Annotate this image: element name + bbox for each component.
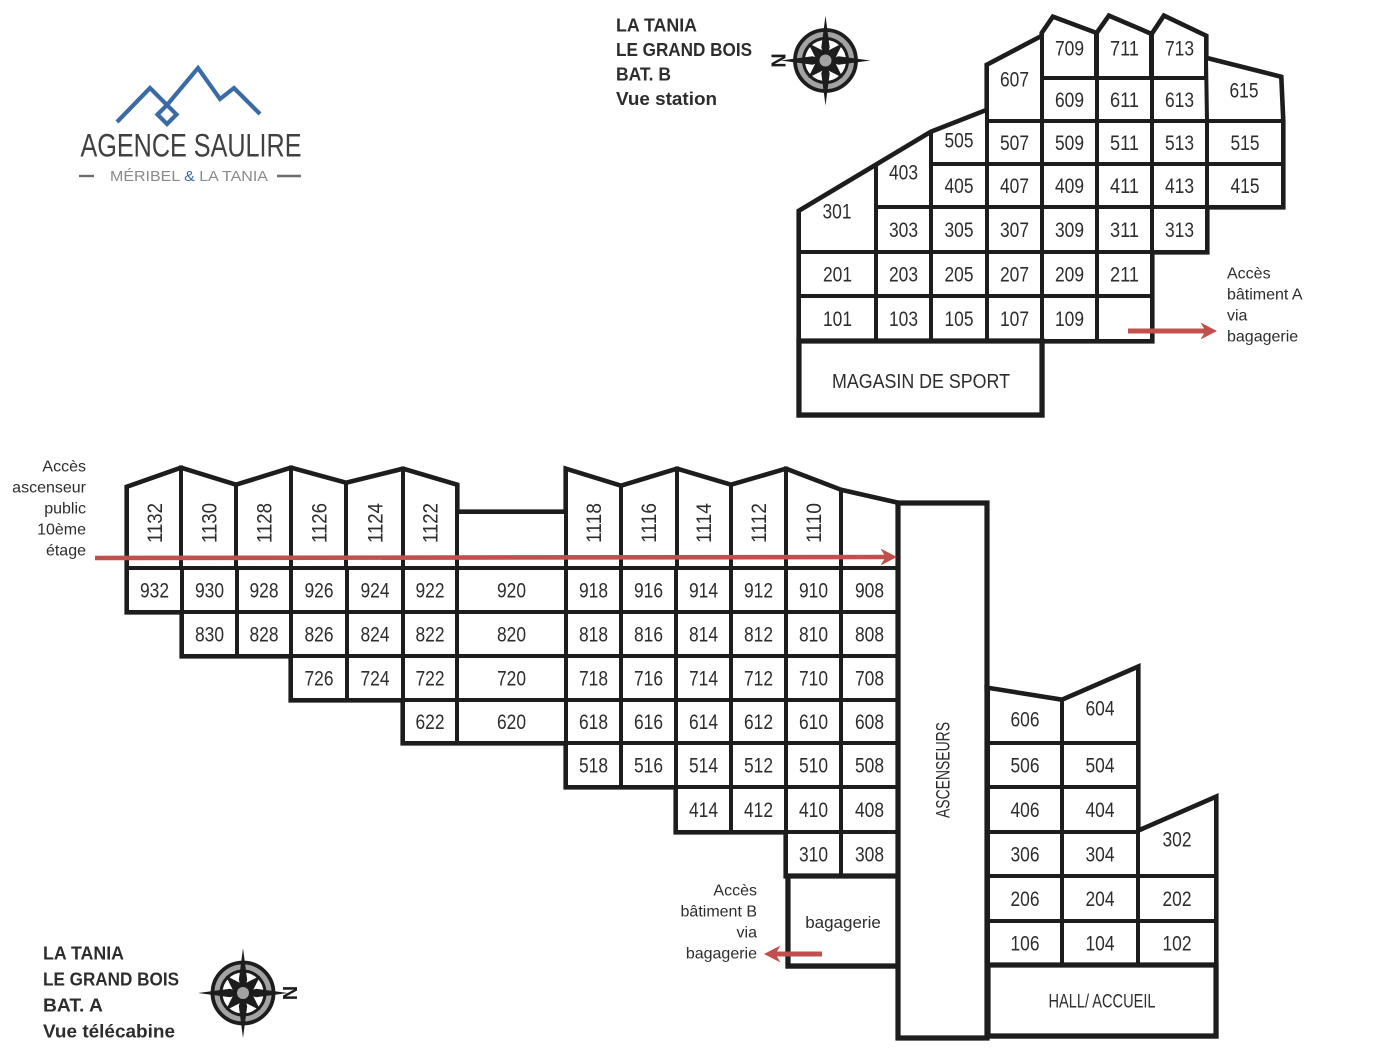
svg-text:822: 822 — [416, 624, 445, 647]
svg-text:309: 309 — [1055, 219, 1084, 242]
svg-text:414: 414 — [689, 799, 718, 822]
svg-text:bâtiment A: bâtiment A — [1227, 287, 1303, 304]
svg-text:409: 409 — [1055, 175, 1084, 198]
svg-text:510: 510 — [799, 755, 828, 778]
svg-text:708: 708 — [855, 668, 884, 691]
svg-text:LE GRAND BOIS: LE GRAND BOIS — [616, 39, 752, 60]
svg-text:713: 713 — [1165, 38, 1194, 61]
svg-text:10ème: 10ème — [37, 522, 86, 539]
svg-text:bagagerie: bagagerie — [686, 946, 757, 963]
svg-text:BAT. A: BAT. A — [43, 995, 103, 1016]
svg-text:311: 311 — [1110, 219, 1139, 242]
svg-text:824: 824 — [361, 624, 390, 647]
svg-text:826: 826 — [305, 624, 334, 647]
svg-text:814: 814 — [689, 624, 718, 647]
svg-text:816: 816 — [634, 624, 663, 647]
svg-text:301: 301 — [823, 201, 852, 224]
svg-text:914: 914 — [689, 580, 718, 603]
svg-text:1126: 1126 — [309, 503, 332, 543]
svg-text:413: 413 — [1165, 175, 1194, 198]
svg-text:106: 106 — [1011, 933, 1040, 956]
svg-text:908: 908 — [855, 580, 884, 603]
svg-text:105: 105 — [945, 308, 974, 331]
svg-text:302: 302 — [1163, 829, 1192, 852]
svg-text:512: 512 — [744, 755, 773, 778]
svg-text:620: 620 — [497, 711, 526, 734]
svg-text:211: 211 — [1110, 264, 1139, 287]
svg-text:408: 408 — [855, 799, 884, 822]
svg-text:109: 109 — [1055, 308, 1084, 331]
svg-text:507: 507 — [1000, 132, 1029, 155]
svg-text:308: 308 — [855, 844, 884, 867]
svg-text:808: 808 — [855, 624, 884, 647]
svg-text:HALL/ ACCUEIL: HALL/ ACCUEIL — [1049, 992, 1156, 1013]
svg-text:928: 928 — [250, 580, 279, 603]
svg-text:205: 205 — [945, 264, 974, 287]
svg-text:101: 101 — [823, 308, 852, 331]
svg-text:103: 103 — [889, 308, 918, 331]
svg-text:709: 709 — [1055, 38, 1084, 61]
svg-text:N: N — [280, 986, 302, 1000]
svg-text:918: 918 — [579, 580, 608, 603]
svg-text:N: N — [769, 53, 791, 67]
svg-text:MÉRIBEL & LA TANIA: MÉRIBEL & LA TANIA — [110, 168, 268, 185]
svg-text:1128: 1128 — [254, 503, 277, 543]
svg-text:1122: 1122 — [420, 503, 443, 543]
svg-text:1110: 1110 — [803, 503, 826, 543]
svg-text:920: 920 — [497, 580, 526, 603]
svg-text:511: 511 — [1110, 132, 1139, 155]
svg-text:201: 201 — [823, 264, 852, 287]
svg-text:930: 930 — [195, 580, 224, 603]
svg-text:916: 916 — [634, 580, 663, 603]
svg-text:711: 711 — [1110, 38, 1139, 61]
svg-text:207: 207 — [1000, 264, 1029, 287]
svg-text:via: via — [1227, 308, 1248, 325]
svg-text:606: 606 — [1011, 709, 1040, 732]
svg-text:305: 305 — [945, 219, 974, 242]
svg-text:Accès: Accès — [42, 459, 86, 476]
svg-text:404: 404 — [1086, 799, 1115, 822]
svg-text:607: 607 — [1000, 69, 1029, 92]
svg-text:608: 608 — [855, 711, 884, 734]
svg-text:1124: 1124 — [365, 503, 388, 543]
svg-text:307: 307 — [1000, 219, 1029, 242]
svg-text:LA TANIA: LA TANIA — [616, 15, 697, 36]
svg-text:618: 618 — [579, 711, 608, 734]
svg-text:716: 716 — [634, 668, 663, 691]
svg-text:616: 616 — [634, 711, 663, 734]
svg-text:1116: 1116 — [638, 503, 661, 543]
svg-text:206: 206 — [1011, 888, 1040, 911]
svg-text:303: 303 — [889, 219, 918, 242]
svg-text:508: 508 — [855, 755, 884, 778]
svg-text:612: 612 — [744, 711, 773, 734]
svg-text:public: public — [44, 501, 86, 518]
svg-text:818: 818 — [579, 624, 608, 647]
svg-text:415: 415 — [1231, 175, 1260, 198]
svg-text:203: 203 — [889, 264, 918, 287]
svg-text:714: 714 — [689, 668, 718, 691]
svg-text:1118: 1118 — [583, 503, 606, 543]
svg-text:bâtiment B: bâtiment B — [681, 904, 757, 921]
svg-text:812: 812 — [744, 624, 773, 647]
svg-text:204: 204 — [1086, 888, 1115, 911]
svg-text:722: 722 — [416, 668, 445, 691]
svg-text:102: 102 — [1163, 933, 1192, 956]
svg-text:Vue télécabine: Vue télécabine — [43, 1021, 175, 1042]
svg-text:515: 515 — [1231, 132, 1260, 155]
svg-text:412: 412 — [744, 799, 773, 822]
svg-text:1112: 1112 — [748, 503, 771, 543]
svg-text:ASCENSEURS: ASCENSEURS — [934, 722, 955, 818]
svg-text:604: 604 — [1086, 698, 1115, 721]
svg-text:MAGASIN DE SPORT: MAGASIN DE SPORT — [832, 371, 1010, 393]
svg-text:1114: 1114 — [693, 503, 716, 543]
svg-text:724: 724 — [361, 668, 390, 691]
svg-text:506: 506 — [1011, 755, 1040, 778]
svg-text:107: 107 — [1000, 308, 1029, 331]
svg-text:Accès: Accès — [713, 883, 757, 900]
svg-text:LE GRAND BOIS: LE GRAND BOIS — [43, 969, 179, 990]
svg-text:306: 306 — [1011, 844, 1040, 867]
svg-text:609: 609 — [1055, 89, 1084, 112]
svg-text:932: 932 — [140, 580, 169, 603]
svg-text:BAT. B: BAT. B — [616, 64, 671, 85]
svg-text:611: 611 — [1110, 89, 1139, 112]
svg-text:via: via — [737, 925, 758, 942]
svg-text:étage: étage — [46, 543, 86, 560]
svg-text:313: 313 — [1165, 219, 1194, 242]
svg-text:922: 922 — [416, 580, 445, 603]
svg-text:622: 622 — [416, 711, 445, 734]
svg-text:924: 924 — [361, 580, 390, 603]
svg-text:926: 926 — [305, 580, 334, 603]
svg-text:LA TANIA: LA TANIA — [43, 943, 124, 964]
svg-text:610: 610 — [799, 711, 828, 734]
svg-text:ascenseur: ascenseur — [12, 480, 86, 497]
svg-text:209: 209 — [1055, 264, 1084, 287]
svg-text:509: 509 — [1055, 132, 1084, 155]
svg-text:828: 828 — [250, 624, 279, 647]
svg-text:1132: 1132 — [144, 503, 167, 543]
svg-text:726: 726 — [305, 668, 334, 691]
svg-text:810: 810 — [799, 624, 828, 647]
svg-text:403: 403 — [889, 162, 918, 185]
svg-text:1130: 1130 — [199, 503, 222, 543]
svg-text:912: 912 — [744, 580, 773, 603]
svg-text:AGENCE SAULIRE: AGENCE SAULIRE — [81, 127, 302, 163]
svg-text:710: 710 — [799, 668, 828, 691]
svg-text:407: 407 — [1000, 175, 1029, 198]
svg-text:614: 614 — [689, 711, 718, 734]
svg-text:712: 712 — [744, 668, 773, 691]
svg-text:310: 310 — [799, 844, 828, 867]
svg-text:410: 410 — [799, 799, 828, 822]
svg-text:615: 615 — [1230, 80, 1259, 103]
svg-text:405: 405 — [945, 175, 974, 198]
svg-text:bagagerie: bagagerie — [1227, 329, 1298, 346]
svg-text:Vue station: Vue station — [616, 88, 717, 109]
svg-text:202: 202 — [1163, 888, 1192, 911]
svg-text:505: 505 — [945, 130, 974, 153]
svg-text:518: 518 — [579, 755, 608, 778]
svg-text:613: 613 — [1165, 89, 1194, 112]
svg-text:514: 514 — [689, 755, 718, 778]
svg-text:104: 104 — [1086, 933, 1115, 956]
svg-text:516: 516 — [634, 755, 663, 778]
svg-text:830: 830 — [195, 624, 224, 647]
svg-text:304: 304 — [1086, 844, 1115, 867]
svg-text:910: 910 — [799, 580, 828, 603]
svg-text:720: 720 — [497, 668, 526, 691]
svg-text:718: 718 — [579, 668, 608, 691]
svg-text:411: 411 — [1110, 175, 1139, 198]
svg-text:513: 513 — [1165, 132, 1194, 155]
svg-text:504: 504 — [1086, 755, 1115, 778]
svg-text:Accès: Accès — [1227, 266, 1271, 283]
svg-text:820: 820 — [497, 624, 526, 647]
svg-text:bagagerie: bagagerie — [805, 913, 881, 932]
svg-text:406: 406 — [1011, 799, 1040, 822]
